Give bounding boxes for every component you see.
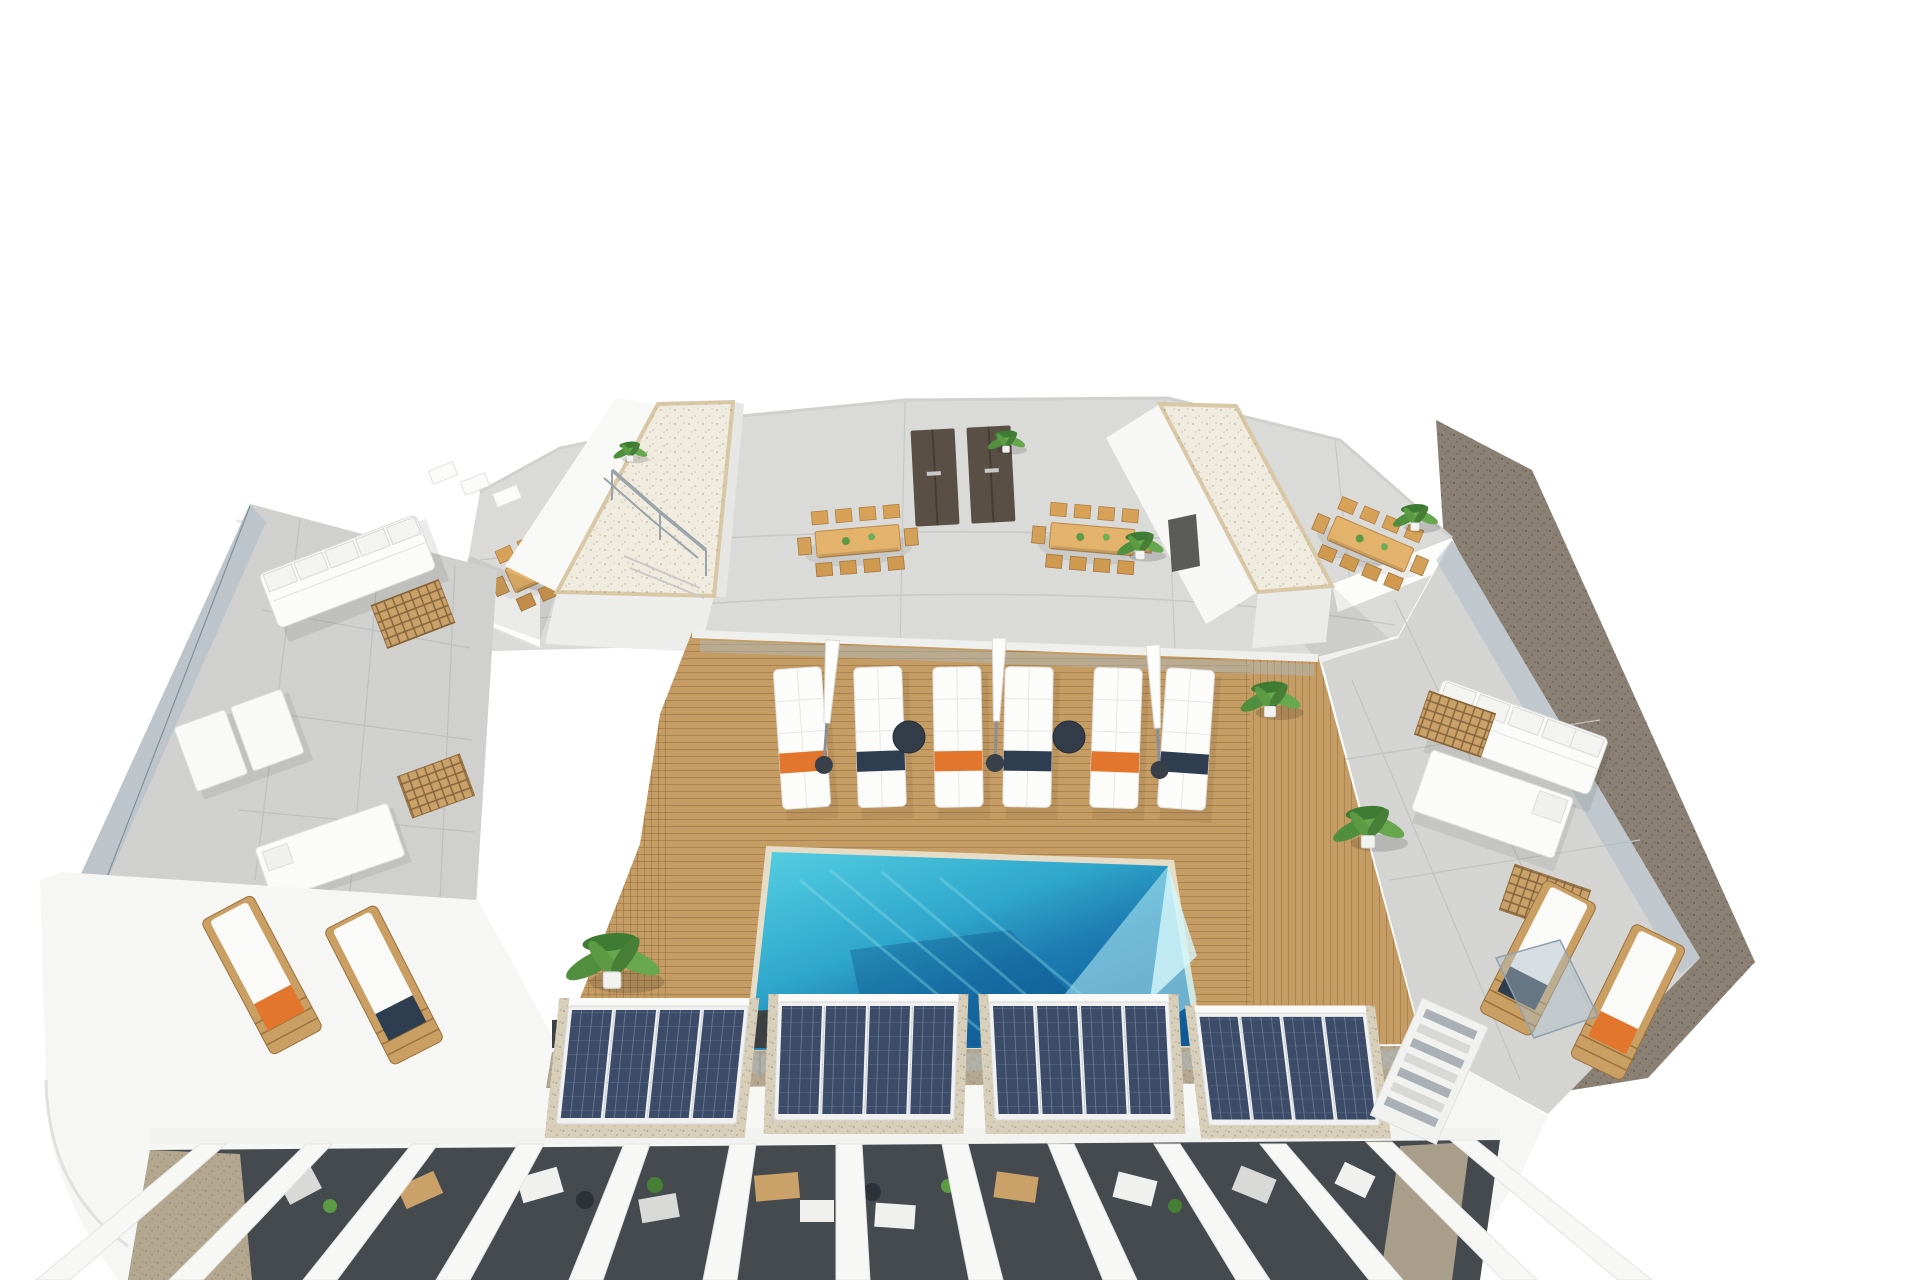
side-table-2 — [1053, 721, 1085, 753]
tower-door — [1168, 514, 1200, 572]
solar-array-1 — [545, 998, 760, 1138]
double-lounger-3 — [933, 666, 991, 819]
side-table-1 — [893, 721, 925, 753]
solar-array-2 — [764, 994, 969, 1134]
double-lounger-6 — [1156, 667, 1221, 822]
double-lounger-4 — [1003, 667, 1061, 820]
solar-array-4 — [1185, 1006, 1391, 1139]
pergola-band — [36, 1128, 1652, 1280]
scene-canvas — [0, 0, 1920, 1280]
solar-array-3 — [978, 994, 1185, 1134]
double-lounger-5 — [1089, 667, 1149, 821]
render-stage — [0, 0, 1920, 1280]
